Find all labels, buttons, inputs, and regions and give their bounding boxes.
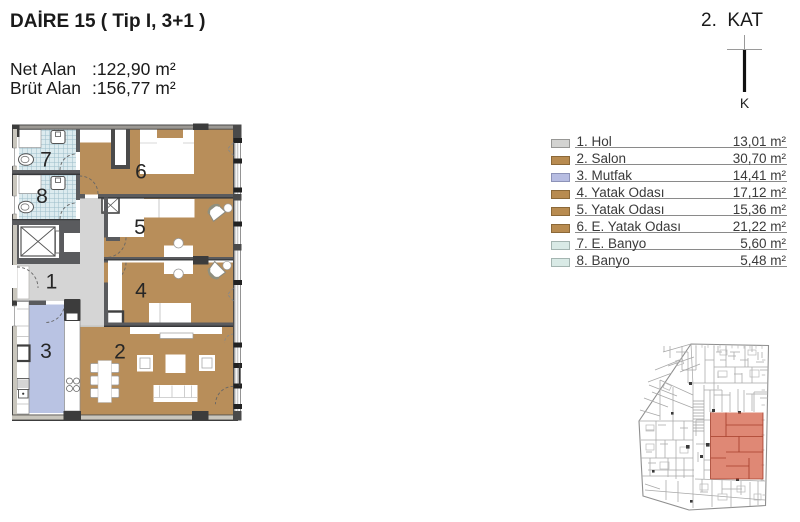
svg-text:1: 1: [46, 271, 58, 294]
svg-text:8: 8: [36, 185, 48, 208]
svg-text:4: 4: [135, 280, 147, 303]
svg-text:2: 2: [114, 341, 126, 364]
svg-text:5: 5: [134, 216, 146, 239]
svg-text:6: 6: [135, 161, 147, 184]
svg-text:7: 7: [40, 149, 52, 172]
svg-text:3: 3: [40, 340, 52, 363]
